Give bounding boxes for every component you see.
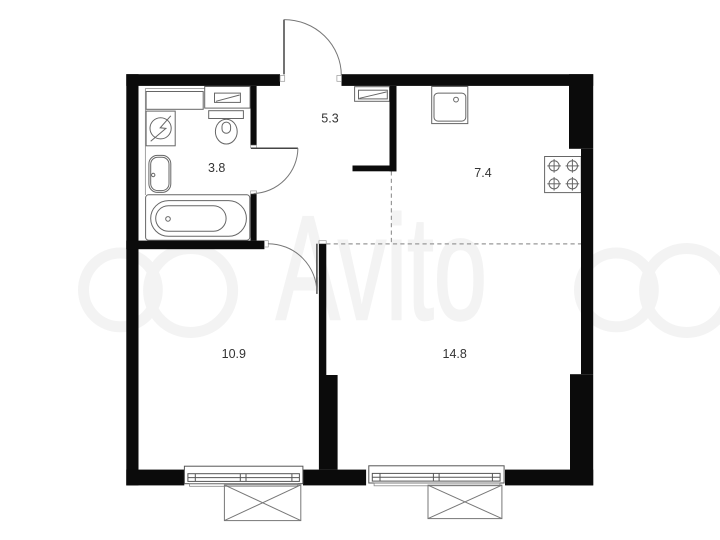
svg-text:14.8: 14.8 [443, 347, 467, 361]
svg-text:3.8: 3.8 [208, 161, 225, 175]
svg-text:Avito: Avito [276, 186, 487, 351]
svg-text:5.3: 5.3 [321, 112, 338, 126]
svg-text:10.9: 10.9 [222, 347, 246, 361]
svg-text:7.4: 7.4 [474, 166, 491, 180]
